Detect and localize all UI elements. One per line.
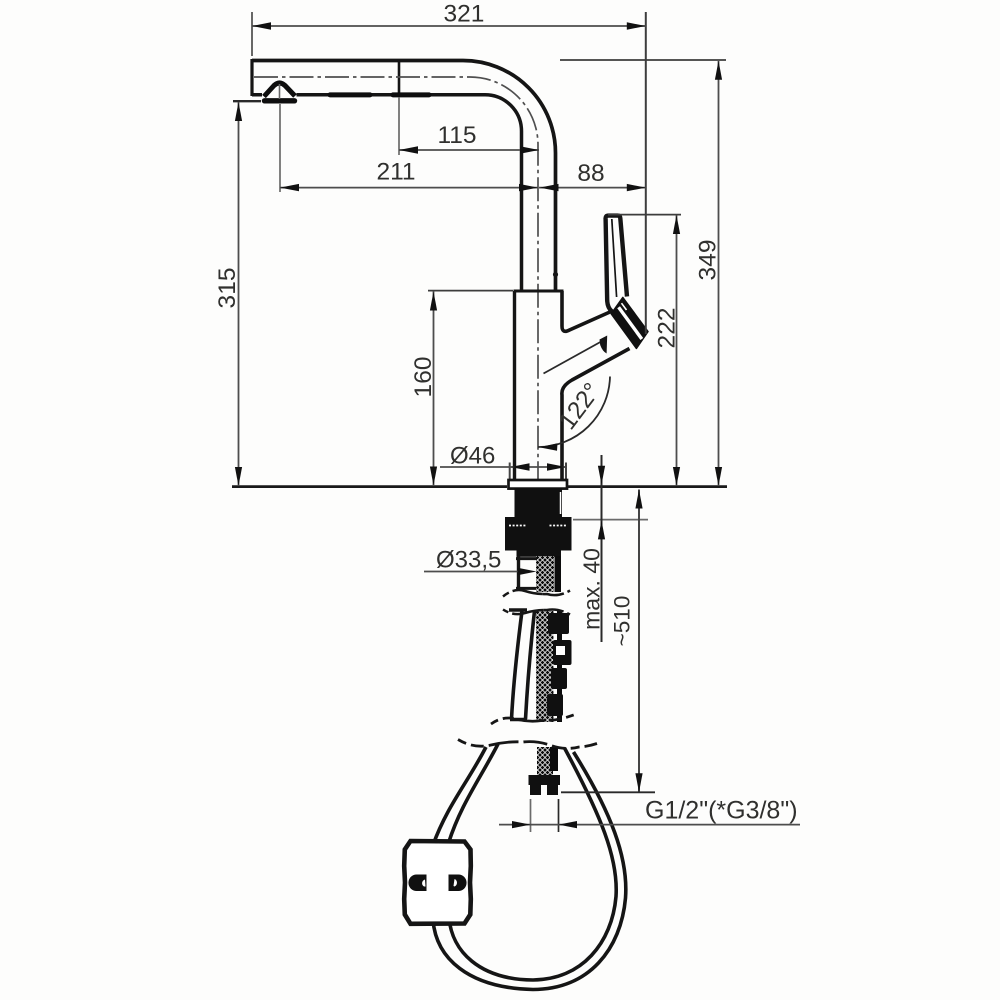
svg-text:115: 115 xyxy=(437,122,476,149)
svg-text:88: 88 xyxy=(577,160,604,187)
svg-text:Ø33,5: Ø33,5 xyxy=(436,547,501,574)
svg-text:321: 321 xyxy=(444,1,485,28)
svg-text:~510: ~510 xyxy=(610,596,635,647)
svg-text:Ø46: Ø46 xyxy=(450,443,495,470)
svg-text:211: 211 xyxy=(376,159,415,186)
svg-text:315: 315 xyxy=(214,268,241,309)
svg-text:max. 40: max. 40 xyxy=(579,548,605,630)
svg-text:160: 160 xyxy=(410,357,437,398)
svg-text:349: 349 xyxy=(695,240,722,281)
svg-text:222: 222 xyxy=(654,308,681,349)
svg-text:G1/2"(*G3/8"): G1/2"(*G3/8") xyxy=(645,797,798,825)
